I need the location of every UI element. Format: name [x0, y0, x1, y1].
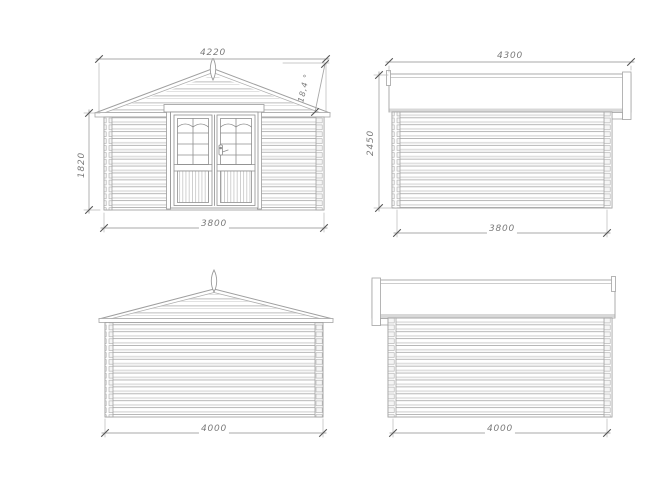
front-corner-post-right: [316, 117, 324, 210]
side-a-roof: [389, 74, 631, 112]
side-a-fascia-front: [623, 72, 632, 120]
dim-rear-width-bottom: 4000: [199, 424, 229, 434]
dim-side-a-width-bottom: 3800: [487, 224, 517, 234]
front-corner-post-left: [104, 117, 112, 210]
drawing-canvas: 4220 18,4 ° 1820 3800 4300 2450 3800 400…: [0, 0, 667, 500]
dim-side-a-width-top: 4300: [495, 51, 525, 61]
rear-gable-siding: [111, 293, 321, 319]
double-door: [171, 112, 259, 208]
side-b-fascia-front: [372, 278, 381, 326]
door-panel-right: [221, 171, 252, 203]
dim-front-width-bottom: 3800: [199, 219, 229, 229]
rear-elevation: [99, 270, 333, 437]
rear-wall-logs: [105, 323, 323, 418]
front-elevation: [84, 56, 330, 232]
side-a-wall-logs: [392, 112, 612, 208]
dim-side-a-height: 2450: [366, 128, 376, 158]
rear-eave-fascia: [99, 319, 333, 323]
side-a-corner-post-left: [392, 112, 400, 208]
side-a-corner-post-right: [604, 112, 612, 208]
side-b-corner-post-left: [388, 318, 396, 417]
dim-front-width-top: 4220: [198, 48, 228, 58]
front-roof-finial: [210, 58, 215, 80]
door-window-right: [221, 119, 252, 165]
side-b-roof: [372, 280, 615, 318]
side-a-bargeboard-rear: [387, 71, 391, 86]
side-b-roof-edge-shade: [373, 314, 615, 318]
elevation-drawings: [0, 0, 667, 500]
door-window-left: [178, 119, 209, 165]
rear-corner-post-left: [105, 323, 113, 418]
rear-corner-post-right: [315, 323, 323, 418]
door-panel-left: [178, 171, 209, 203]
dim-front-height: 1820: [77, 150, 87, 180]
dim-side-b-width-bottom: 4000: [485, 424, 515, 434]
side-elevation-b: [372, 277, 616, 438]
side-b-corner-post-right: [604, 318, 612, 417]
door-lintel: [164, 105, 264, 113]
side-b-bargeboard-rear: [612, 277, 616, 292]
side-elevation-a: [374, 59, 634, 237]
side-b-wall-logs: [388, 318, 612, 417]
rear-roof-finial: [211, 270, 216, 292]
door-trim-left: [167, 112, 171, 209]
